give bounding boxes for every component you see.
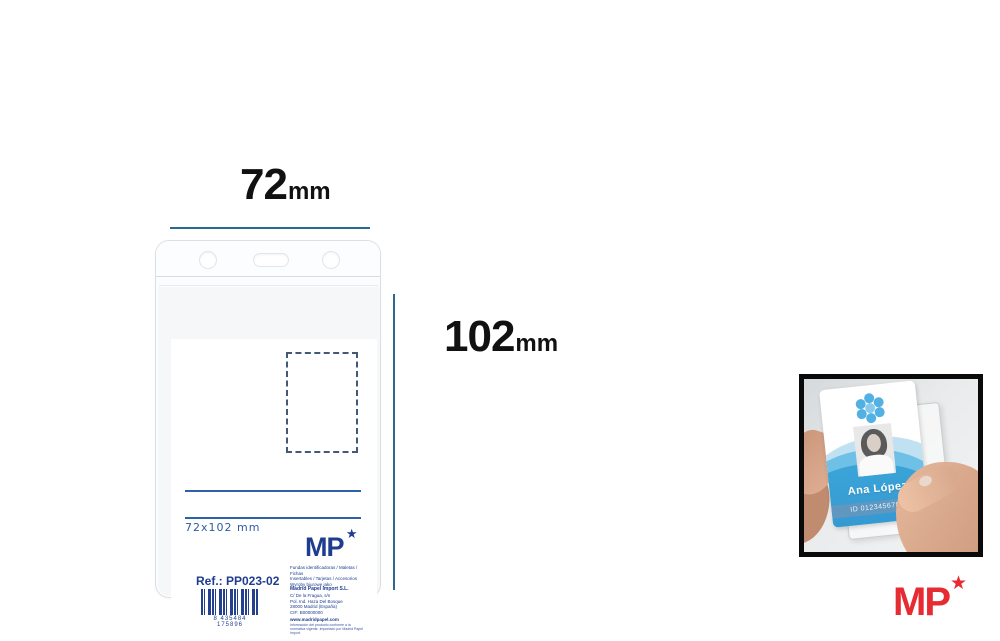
mp-brand-logo-text: MP [893,580,949,624]
manufacturer-info-block: Fundas identificadoras / Maletas / Ficha… [290,565,366,636]
holder-pocket: 72x102 mm MP ★ Fundas identificadoras / … [158,287,380,596]
insert-writing-line-1 [185,490,361,492]
paper-insert: 72x102 mm MP ★ Fundas identificadoras / … [171,339,377,629]
holder-seam [159,285,378,286]
photo-guide-dashed-box [286,352,358,453]
height-unit: mm [515,330,558,358]
mp-brand-logo-star-icon: ★ [950,572,967,595]
badge-holder: 72x102 mm MP ★ Fundas identificadoras / … [155,240,381,598]
info-line: Fundas identificadoras / Maletas / Ficha… [290,565,366,576]
portrait-coat [858,453,894,477]
barcode-bars-icon [201,589,259,615]
clip-slot [253,253,289,267]
card-portrait-photo [853,423,896,477]
width-dimension-label: 72 mm [240,160,331,210]
insert-size-label: 72x102 mm [185,521,260,534]
product-sheet: 72 mm 102 mm 72x102 mm MP ★ [0,0,1000,641]
width-unit: mm [288,178,331,206]
height-value: 102 [444,312,514,362]
height-dimension-label: 102 mm [444,312,558,362]
barcode: 8 435484 175896 [201,589,259,628]
reference-label: Ref.: PP023-02 [196,574,279,588]
punch-hole-left [199,251,217,269]
photo-scene: Ana López ID 01234567890 [804,379,978,552]
height-dimension-line [393,294,395,590]
petal [866,413,877,424]
product-photo-inset: Ana López ID 01234567890 [799,374,983,557]
holder-top-flap [156,241,380,277]
mp-logo-navy-text: MP [305,532,344,562]
info-line-legal: Información del producto conforme a la n… [290,623,366,636]
width-dimension-line [170,227,370,229]
width-value: 72 [240,160,287,210]
mp-brand-logo: MP ★ [893,580,949,625]
mp-logo-navy: MP ★ [305,532,344,563]
punch-hole-right [322,251,340,269]
barcode-digits: 8 435484 175896 [201,616,259,628]
insert-writing-line-2 [185,517,361,519]
flower-logo-icon [854,392,887,425]
info-line: CIF: B00000000 [290,610,366,616]
mp-logo-navy-star-icon: ★ [346,526,358,542]
info-line: Insertables / Tarjetas / Accesorios [290,576,366,582]
